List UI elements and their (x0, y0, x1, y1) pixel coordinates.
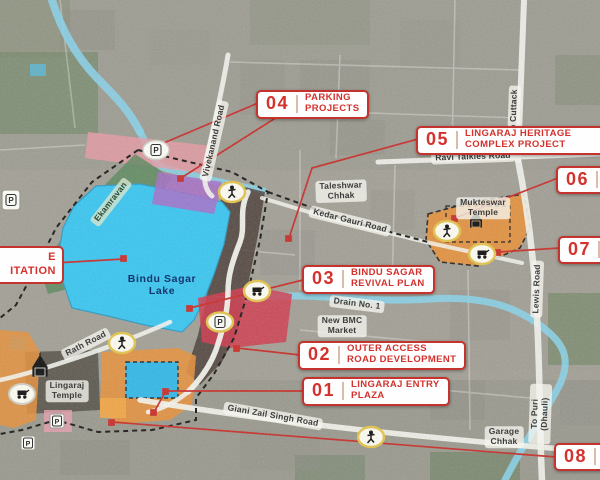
callout-divider (338, 346, 340, 364)
callout-divider (342, 382, 344, 400)
place-label-lingaraj-temple: Lingaraj Temple (46, 380, 89, 402)
callout-divider (296, 95, 298, 113)
callout-divider (596, 171, 598, 188)
callout-06: 06 (556, 166, 600, 194)
callout-number: 02 (308, 344, 331, 365)
callout-number: 01 (312, 380, 335, 401)
callout-number: 04 (266, 93, 289, 114)
callout-07: 07 (558, 236, 600, 264)
callout-02-outer-access-road: 02 OUTER ACCESS ROAD DEVELOPMENT (298, 341, 466, 370)
callout-label: LINGARAJ ENTRY PLAZA (351, 380, 440, 402)
callout-divider (456, 131, 458, 149)
callout-label: PARKING PROJECTS (305, 93, 359, 115)
callout-label: LINGARAJ HERITAGE COMPLEX PROJECT (465, 129, 571, 151)
place-label-mukteswar-temple: Mukteswar Temple (456, 197, 510, 219)
callout-number: 05 (426, 129, 449, 150)
place-label-garage-chhak: Garage Chhak (485, 426, 524, 448)
callout-partial-left: E ITATION (0, 246, 64, 284)
callout-number: 07 (568, 239, 591, 260)
heritage-projects-map: P P P P P (0, 0, 600, 480)
road-label-lewis: Lewis Road (530, 260, 544, 318)
callout-04-parking-projects: 04 PARKING PROJECTS (256, 90, 369, 119)
callout-05-lingaraj-heritage-complex: 05 LINGARAJ HERITAGE COMPLEX PROJECT (416, 126, 600, 155)
road-label-to-puri: To Puri (Dhauli) (528, 384, 552, 445)
place-label-new-bmc-market: New BMC Market (318, 315, 367, 337)
place-label-bindu-sagar-lake: Bindu Sagar Lake (124, 272, 200, 298)
callout-label: BINDU SAGAR REVIVAL PLAN (351, 268, 425, 290)
callout-number: 06 (566, 169, 589, 190)
place-label-taleshwar-chhak: Taleshwar Chhak (315, 179, 366, 202)
callout-01-lingaraj-entry-plaza: 01 LINGARAJ ENTRY PLAZA (302, 377, 450, 406)
callout-divider (594, 448, 596, 465)
callout-number: 03 (312, 268, 335, 289)
callout-label: OUTER ACCESS ROAD DEVELOPMENT (347, 344, 456, 366)
noise-overlay (0, 0, 600, 480)
callout-number: 08 (564, 446, 587, 467)
callout-03-bindu-sagar-revival: 03 BINDU SAGAR REVIVAL PLAN (302, 265, 435, 294)
map-canvas: P P P P P (0, 0, 600, 480)
callout-08: 08 (554, 443, 600, 471)
callout-divider (342, 270, 344, 288)
